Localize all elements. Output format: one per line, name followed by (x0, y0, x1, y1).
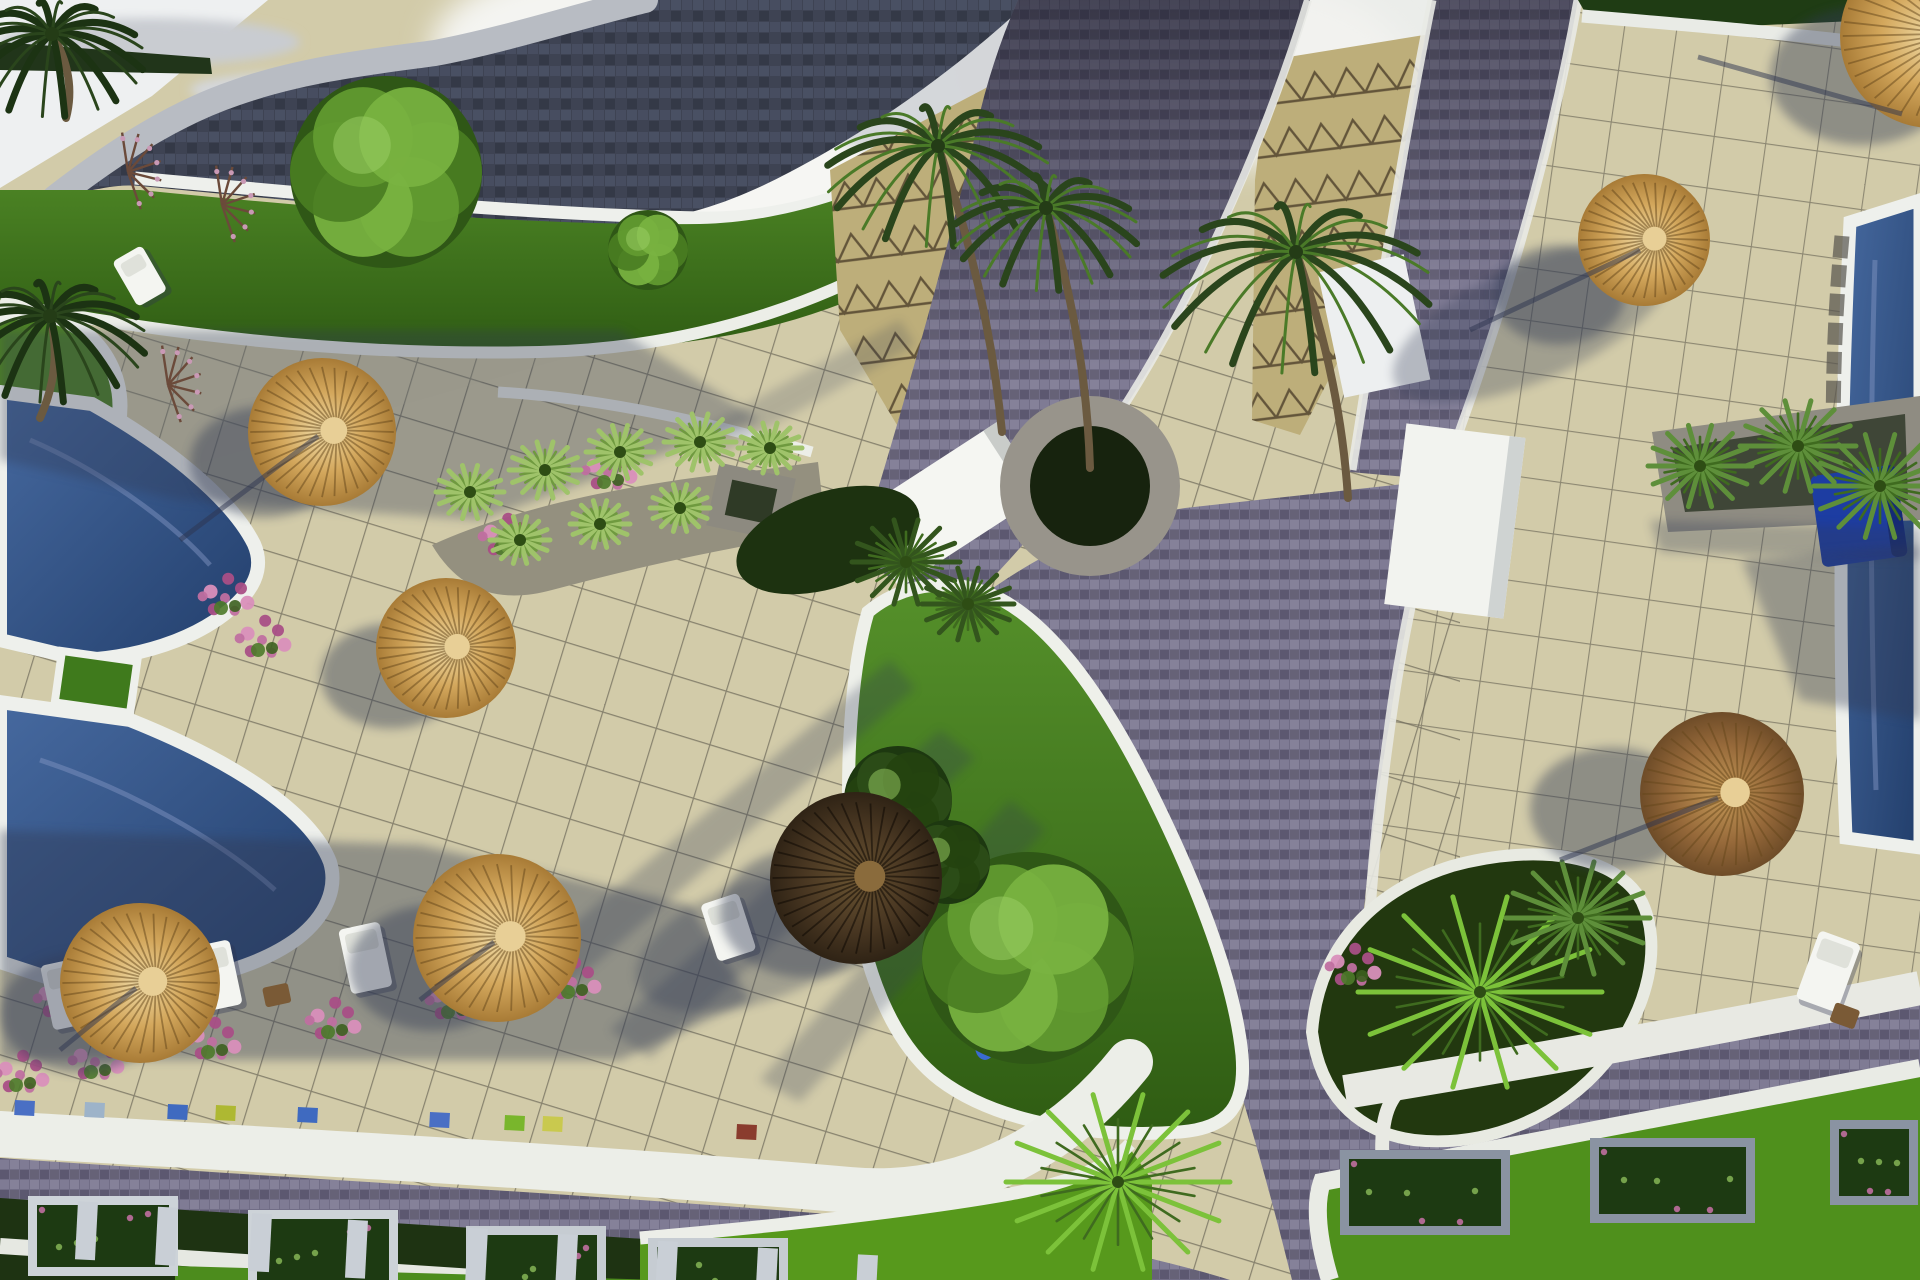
umbrella-knob (495, 921, 525, 951)
flower (235, 582, 247, 594)
flower (342, 1006, 354, 1018)
twig-bud (188, 404, 193, 409)
twig-bud (241, 179, 246, 184)
twig-bud (154, 160, 159, 165)
street-object (504, 1115, 525, 1131)
flower-leaf (251, 643, 265, 657)
hedge-post (345, 1220, 368, 1279)
palm-crown (1289, 245, 1303, 259)
planter-flower (145, 1211, 151, 1217)
planter-flower (1707, 1207, 1713, 1213)
flower (272, 624, 284, 636)
palm-center (694, 436, 706, 448)
twig-bud (155, 176, 160, 181)
deck-planter (55, 651, 137, 713)
flower (235, 633, 245, 643)
planter-flower (1472, 1188, 1478, 1194)
flower-leaf (1341, 971, 1355, 985)
street-object (215, 1105, 236, 1121)
planter-flower (1404, 1190, 1410, 1196)
hedge-post (855, 1254, 878, 1280)
street-object (84, 1102, 105, 1118)
flower-leaf (201, 1045, 215, 1059)
flower (587, 980, 601, 994)
flower-leaf (597, 475, 611, 489)
twig-bud (148, 191, 153, 196)
white-building-slab (1384, 423, 1525, 618)
twig-bud (177, 414, 182, 419)
twig-bud (137, 201, 142, 206)
flower (222, 573, 234, 585)
flower-leaf (321, 1025, 335, 1039)
planter-flower (1674, 1206, 1680, 1212)
palm-center (1112, 1176, 1124, 1188)
street-object (167, 1104, 188, 1120)
hedge-post (249, 1213, 272, 1272)
palm-center (674, 502, 686, 514)
planter-flower (1867, 1188, 1873, 1194)
planter-flower (1366, 1189, 1372, 1195)
planter-flower (1621, 1177, 1627, 1183)
planter-flower (312, 1250, 318, 1256)
palm-center (1874, 480, 1886, 492)
umbrella-knob (1720, 778, 1750, 808)
hedge-post (75, 1201, 98, 1260)
twig-bud (248, 193, 253, 198)
flower (227, 1040, 241, 1054)
planter-flower (276, 1258, 282, 1264)
palm-center (594, 518, 606, 530)
twig-bud (120, 136, 125, 141)
render-canvas (0, 0, 1920, 1280)
street-object (736, 1124, 757, 1140)
flower (1367, 966, 1381, 980)
tree-leafy (608, 210, 688, 290)
planter-box (1830, 1120, 1918, 1205)
planter-flower (1419, 1218, 1425, 1224)
umbrella-knob (854, 861, 885, 892)
twig-bud (187, 359, 192, 364)
umbrella-knob (1643, 227, 1667, 251)
palm-center (962, 598, 974, 610)
planter-flower (696, 1262, 702, 1268)
twig-bud (194, 373, 199, 378)
twig-bud (195, 389, 200, 394)
twig-bud (249, 209, 254, 214)
twig-bud (160, 349, 165, 354)
palm-center (539, 464, 551, 476)
flower-leaf (24, 1077, 36, 1089)
flower-leaf (1356, 970, 1368, 982)
planter-flower (1727, 1176, 1733, 1182)
flower (582, 966, 594, 978)
flower-leaf (9, 1078, 23, 1092)
palm-center (1792, 440, 1804, 452)
twig-bud (214, 169, 219, 174)
palm-center (900, 556, 912, 568)
planter-flower (1876, 1159, 1882, 1165)
flower (305, 1015, 315, 1025)
street-object (542, 1116, 563, 1132)
planter-flower (39, 1207, 45, 1213)
planter-flower (1457, 1219, 1463, 1225)
palm-crown (931, 139, 945, 153)
planter-flower (127, 1215, 133, 1221)
tree-highlight (333, 116, 391, 174)
flower (347, 1020, 361, 1034)
umbrella-knob (445, 634, 470, 659)
planter-flower (530, 1266, 536, 1272)
flower (329, 997, 341, 1009)
planter-flower (583, 1245, 589, 1251)
flower-leaf (229, 600, 241, 612)
palm-center (464, 486, 476, 498)
flower (240, 596, 254, 610)
umbrella-knob (321, 417, 348, 444)
flower (259, 615, 271, 627)
planter-box (1340, 1150, 1510, 1235)
hedge-post (465, 1228, 488, 1280)
planter-flower (294, 1254, 300, 1260)
palm-center (514, 534, 526, 546)
flower (198, 591, 208, 601)
resort-aerial-render (0, 0, 1920, 1280)
hedge-post (755, 1248, 778, 1280)
tree-highlight (970, 897, 1034, 961)
palm-crown (1039, 201, 1053, 215)
planter-flower (56, 1244, 62, 1250)
street-object (429, 1112, 450, 1128)
palm-center (1474, 986, 1486, 998)
flower (277, 638, 291, 652)
planter-flower (1885, 1189, 1891, 1195)
palm-crown (45, 27, 59, 41)
planter-flower (1351, 1161, 1357, 1167)
hedge-post (155, 1207, 178, 1266)
flower-leaf (336, 1024, 348, 1036)
planter-flower (522, 1274, 528, 1280)
twig-bud (229, 170, 234, 175)
hedge-post (655, 1241, 678, 1280)
planter-flower (1894, 1160, 1900, 1166)
planter-flower (1601, 1149, 1607, 1155)
flower-leaf (576, 984, 588, 996)
flower (1325, 961, 1335, 971)
tree-highlight (626, 227, 650, 251)
palm-center (1572, 912, 1584, 924)
palm-center (614, 446, 626, 458)
street-object (297, 1107, 318, 1123)
planter-flower (1858, 1158, 1864, 1164)
hedge-post (555, 1234, 578, 1280)
planter-box (1590, 1138, 1755, 1223)
palm-center (764, 442, 776, 454)
planter-flower (1841, 1131, 1847, 1137)
twig-bud (231, 234, 236, 239)
twig-bud (242, 224, 247, 229)
planter-flower (1654, 1178, 1660, 1184)
twig-bud (147, 146, 152, 151)
flower-leaf (266, 642, 278, 654)
umbrella-knob (138, 967, 167, 996)
flower-leaf (214, 601, 228, 615)
palm-center (1694, 460, 1706, 472)
flower (1362, 952, 1374, 964)
palm-crown (43, 309, 57, 323)
twig-bud (135, 137, 140, 142)
twig-bud (175, 350, 180, 355)
flower (1349, 943, 1361, 955)
flower (222, 1026, 234, 1038)
flower-leaf (216, 1044, 228, 1056)
flower (478, 531, 488, 541)
street-object (14, 1100, 35, 1116)
tree-leafy (290, 76, 482, 268)
flower (35, 1073, 49, 1087)
